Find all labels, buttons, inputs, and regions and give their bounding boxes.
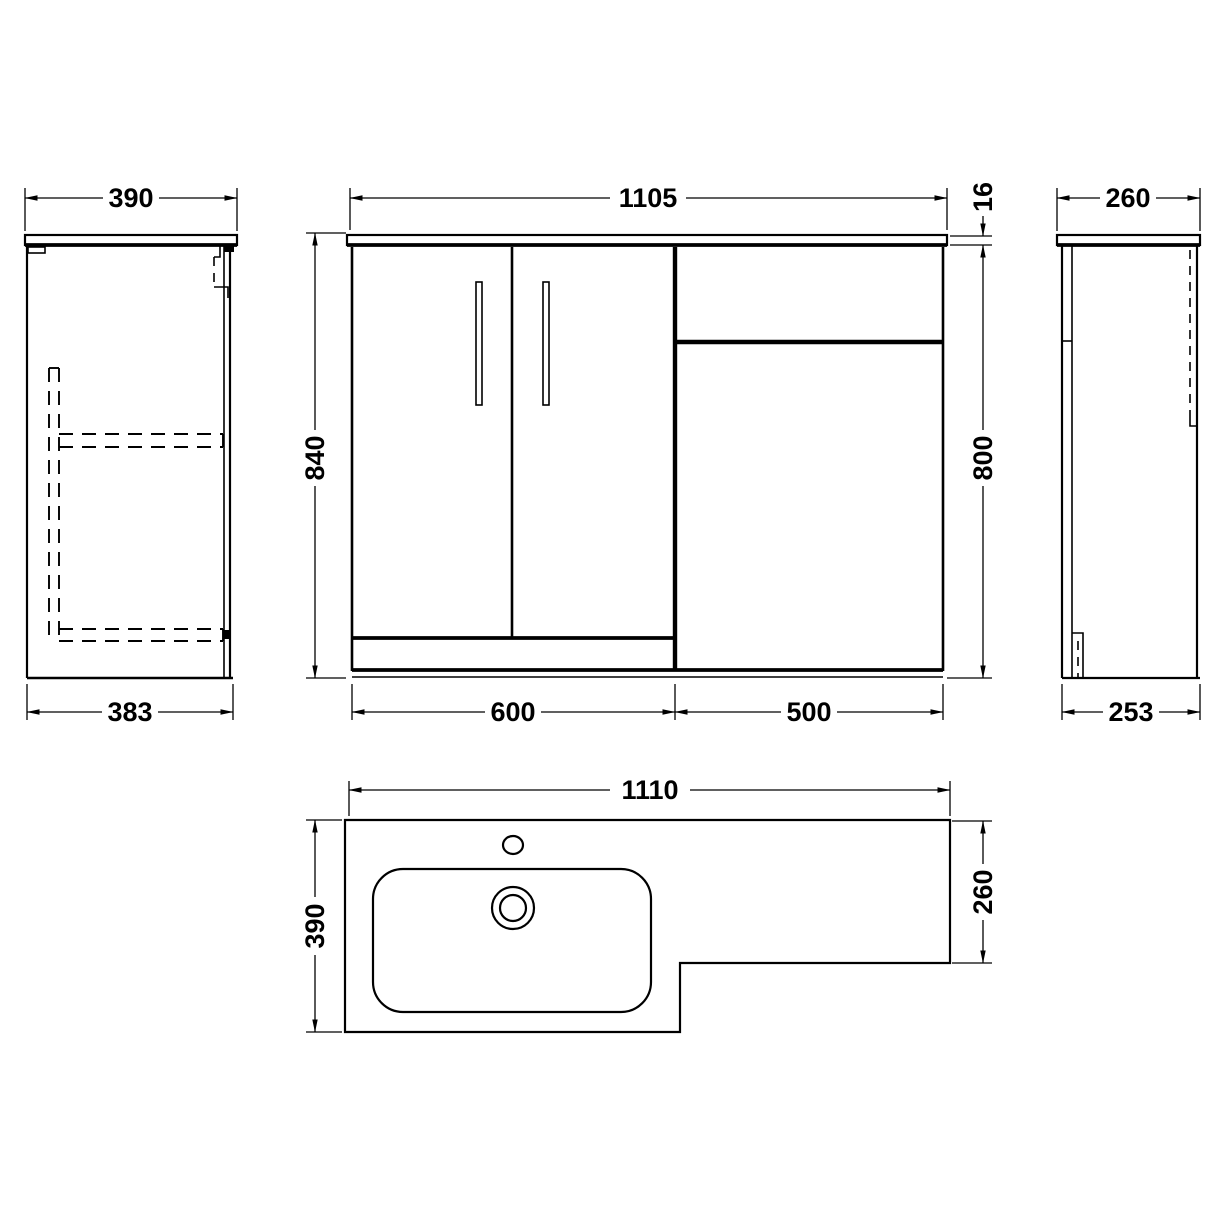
dim-label-plan-depth-full: 390 (300, 903, 330, 948)
dim-worktop-thickness: 16 (950, 182, 998, 245)
dim-label-front-width: 1105 (619, 183, 678, 213)
fixing-block-bottom (224, 630, 231, 639)
side-view-right (1057, 235, 1200, 678)
dim-label-worktop-thickness: 16 (968, 182, 998, 212)
dim-label-side-left-width: 390 (108, 183, 153, 213)
dim-label-front-height-overall: 840 (300, 435, 330, 480)
dim-label-vanity-width: 600 (490, 697, 535, 727)
dim-front-height-overall: 840 (300, 233, 346, 678)
bracket-step-bottom (214, 287, 228, 298)
dim-front-width: 1105 (350, 183, 947, 230)
dim-side-right-width: 260 (1057, 183, 1200, 231)
dim-label-wc-width: 500 (786, 697, 831, 727)
dim-side-left-base: 383 (27, 684, 233, 727)
hinge-plate-icon (28, 247, 45, 253)
front-view (347, 235, 947, 677)
dim-label-side-left-base: 383 (107, 697, 152, 727)
door-handle-left-icon (476, 282, 482, 405)
door-handle-right-icon (543, 282, 549, 405)
dim-label-front-height-cabinet: 800 (968, 435, 998, 480)
dim-label-side-right-width: 260 (1105, 183, 1150, 213)
dim-plan-depth-full: 390 (300, 820, 342, 1032)
dim-plan-width: 1110 (349, 775, 950, 816)
technical-drawing-page: 390 383 1105 16 (0, 0, 1224, 1224)
dim-label-plan-width: 1110 (621, 775, 678, 805)
plan-view (345, 820, 950, 1032)
dim-front-height-cabinet: 800 (947, 245, 998, 678)
wc-foot-outline (1072, 633, 1083, 678)
dim-label-plan-depth-cistern: 260 (968, 869, 998, 914)
dim-side-left-width: 390 (25, 183, 237, 231)
dim-wc-width: 500 (675, 684, 943, 727)
dim-label-side-right-base: 253 (1108, 697, 1153, 727)
dim-plan-depth-cistern: 260 (952, 821, 998, 963)
fixing-block-top (224, 246, 234, 252)
worktop-plan-outline (345, 820, 950, 1032)
side-view-left (25, 235, 237, 678)
dim-vanity-width: 600 (352, 684, 675, 727)
dim-side-right-base: 253 (1062, 684, 1200, 727)
drawing-svg: 390 383 1105 16 (0, 0, 1224, 1224)
